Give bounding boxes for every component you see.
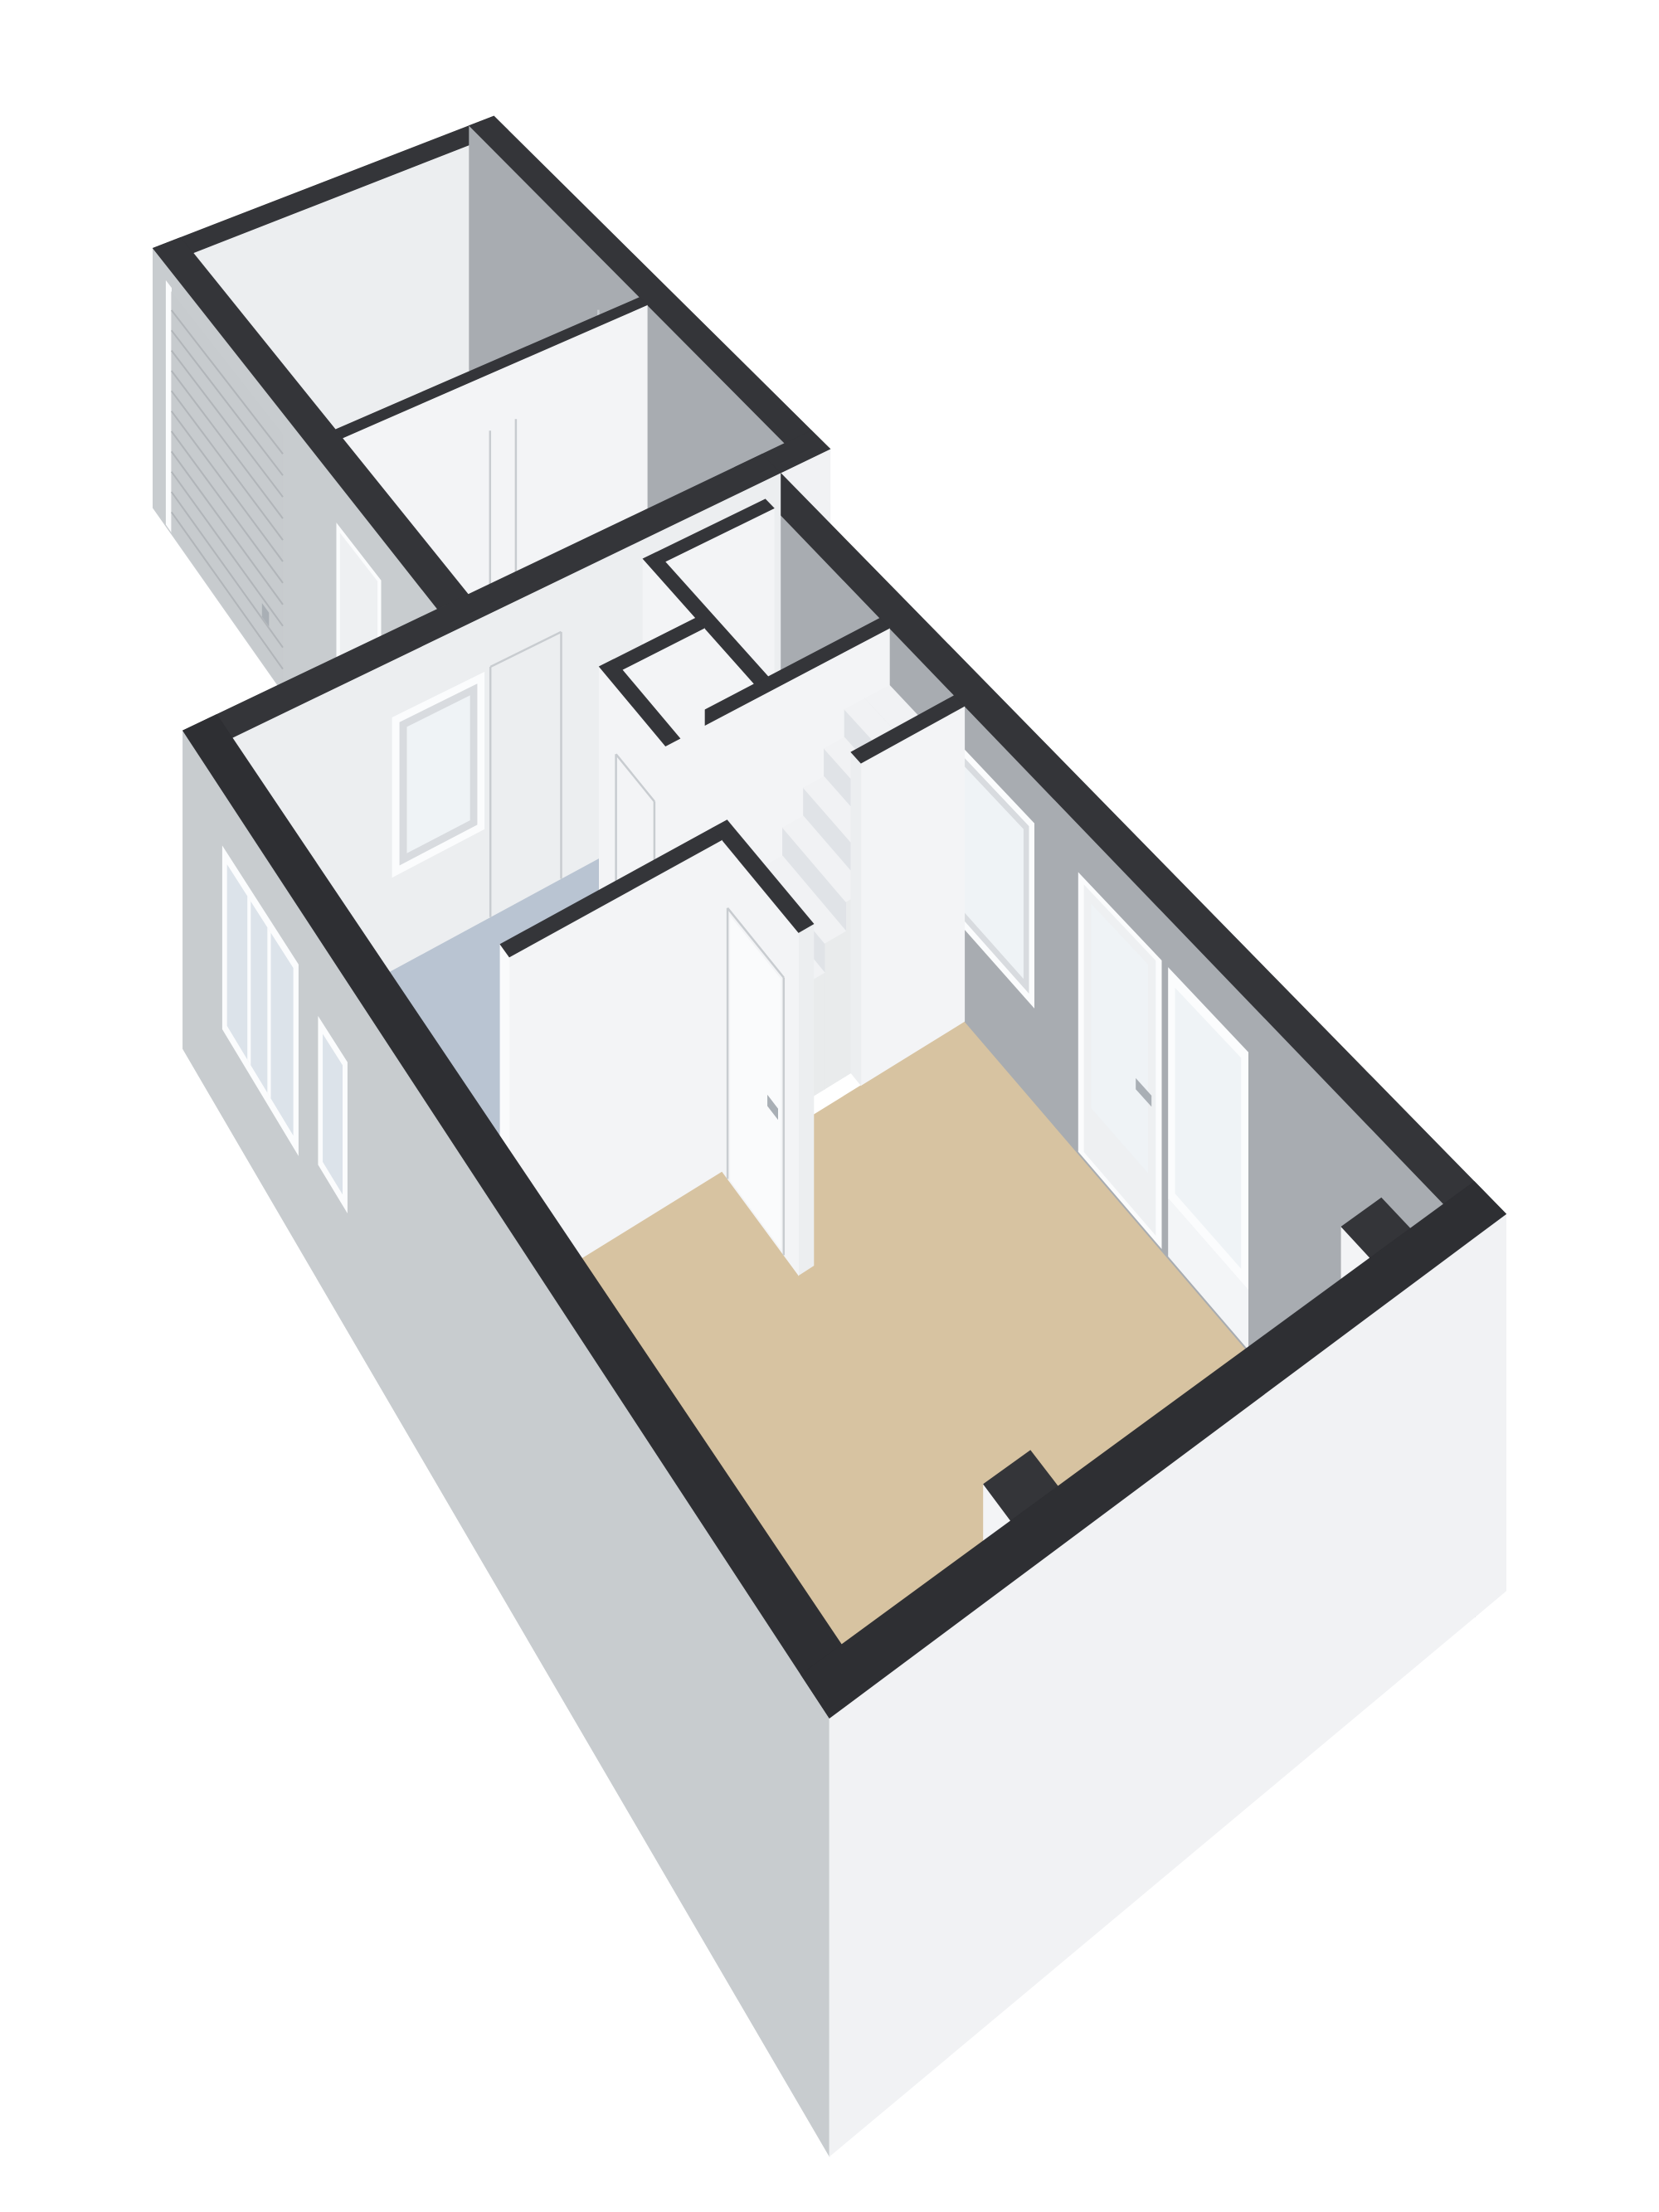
living-wall-a-north-face [861,706,965,1085]
floorplan-3d-canvas [0,0,1659,2212]
garage-door-jamb [166,281,172,532]
hall-bigwindow-mullion-2 [268,928,271,1097]
hall-living-wall-north-face [799,924,814,1276]
living-wall-a-north-face [851,752,861,1086]
floorplan-3d-stage [0,0,1659,2212]
hall-bigwindow-mullion-1 [248,897,251,1064]
staircase-side-4 [825,931,846,1089]
